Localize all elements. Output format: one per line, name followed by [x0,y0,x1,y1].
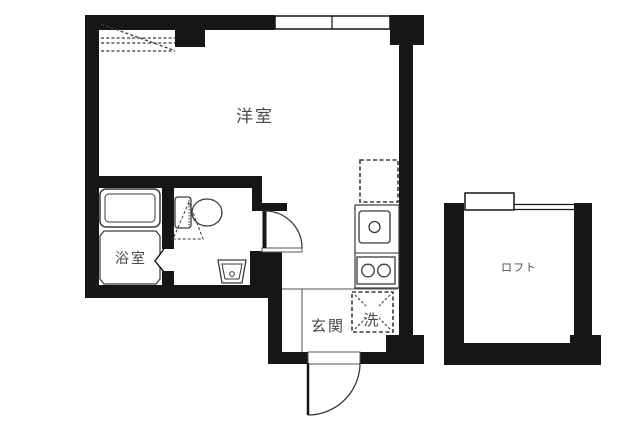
wall-loft-bottom [444,343,601,365]
label-bathroom: 浴室 [115,250,147,266]
bathtub-icon [100,189,160,227]
main-room-top-window [275,16,390,29]
wall-left [85,15,99,298]
toilet-icon [175,197,222,228]
wall-bath-toilet-divider-upper [162,188,174,249]
wall-top-right-block [390,15,424,45]
entrance-swing-door [308,352,360,415]
hand-basin-icon [218,260,246,283]
label-entrance: 玄関 [311,318,345,335]
refrigerator-space-dashed [360,160,398,202]
kitchen-sink-icon [359,211,390,243]
wall-genkan-bottom-left [268,352,308,364]
label-loft: ロフト [501,262,537,274]
entrance-door-arc [308,363,360,415]
wall-pillar-block [175,15,205,47]
wall-mainroom-bottom [85,176,262,188]
wall-genkan-corner-block [386,335,424,364]
wall-bath-toilet-divider-lower [162,271,174,291]
entrance-threshold [308,352,360,364]
floorplan-svg: 洋室 浴室 玄関 洗 ロフト [0,0,640,425]
stove-icon [357,257,395,284]
label-washer: 洗 [363,312,380,329]
floorplan-canvas: 洋室 浴室 玄関 洗 ロフト [0,0,640,425]
loft-window [465,193,574,210]
wall-door-header [252,203,287,211]
room-door-arc [265,211,302,248]
walls [85,15,601,365]
room-swing-door [262,211,302,252]
room-door-threshold [262,248,302,252]
wall-right [399,45,413,337]
label-western-room: 洋室 [236,107,274,126]
wall-loft-right [574,203,592,337]
wall-loft-left [444,203,464,365]
